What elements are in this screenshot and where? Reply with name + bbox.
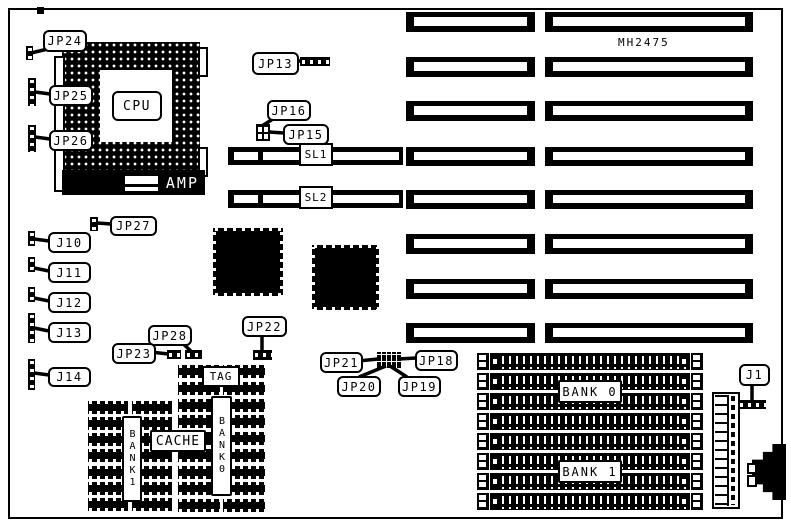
simm-bank0-label: BANK 0 bbox=[558, 380, 622, 403]
jumper-j10 bbox=[28, 231, 35, 246]
label-jp20: JP20 bbox=[337, 376, 381, 397]
expansion-slot bbox=[406, 234, 535, 254]
label-jp16: JP16 bbox=[267, 100, 311, 121]
keyboard-connector-notch bbox=[747, 475, 757, 487]
jumper-jp25 bbox=[28, 78, 36, 106]
label-jp28: JP28 bbox=[148, 325, 192, 346]
label-jp26: JP26 bbox=[49, 130, 93, 151]
board-edge-pad bbox=[37, 7, 44, 14]
jumper-j1 bbox=[738, 400, 766, 409]
expansion-slot bbox=[545, 190, 753, 209]
keyboard-connector-notch bbox=[747, 463, 757, 474]
label-jp27: JP27 bbox=[110, 216, 157, 236]
jumper-block-jp18-jp21 bbox=[377, 352, 401, 368]
simm-socket bbox=[477, 493, 703, 510]
simm-socket bbox=[477, 413, 703, 430]
jumper-jp27 bbox=[90, 217, 98, 231]
expansion-slot bbox=[406, 57, 535, 77]
expansion-slot bbox=[545, 57, 753, 77]
expansion-slot bbox=[545, 147, 753, 166]
label-jp24: JP24 bbox=[43, 30, 87, 52]
expansion-slot bbox=[545, 101, 753, 121]
label-j14: J14 bbox=[48, 367, 91, 387]
expansion-slot bbox=[545, 279, 753, 299]
simm-socket bbox=[477, 433, 703, 450]
sl1-label: SL1 bbox=[299, 143, 333, 166]
jumper-jp26 bbox=[28, 125, 36, 152]
jumper-jp23 bbox=[167, 350, 181, 359]
expansion-slot bbox=[406, 190, 535, 209]
cache-label: CACHE bbox=[150, 430, 206, 452]
jumper-jp15-jp16 bbox=[256, 124, 270, 141]
expansion-slot bbox=[406, 12, 535, 32]
label-jp19: JP19 bbox=[398, 376, 441, 397]
label-jp15: JP15 bbox=[283, 124, 329, 145]
expansion-slot bbox=[545, 12, 753, 32]
expansion-slot bbox=[545, 323, 753, 343]
label-jp23: JP23 bbox=[112, 343, 156, 364]
expansion-slot bbox=[406, 101, 535, 121]
label-jp22: JP22 bbox=[242, 316, 287, 337]
motherboard-diagram: CPU AMP MH2475 SL1 SL2 bbox=[0, 0, 791, 527]
bank0-chip-label: BANK0 bbox=[211, 396, 232, 496]
expansion-slot bbox=[406, 147, 535, 166]
jumper-jp22 bbox=[253, 350, 272, 360]
sl2-label: SL2 bbox=[299, 186, 333, 209]
power-connector bbox=[712, 392, 740, 509]
amp-label: AMP bbox=[166, 174, 199, 192]
label-jp21: JP21 bbox=[320, 352, 363, 373]
label-jp25: JP25 bbox=[49, 85, 93, 106]
jumper-jp24 bbox=[26, 46, 33, 60]
part-number-label: MH2475 bbox=[618, 36, 670, 49]
label-jp13: JP13 bbox=[252, 52, 299, 75]
simm-socket bbox=[477, 353, 703, 370]
expansion-slot bbox=[406, 279, 535, 299]
expansion-slot bbox=[406, 323, 535, 343]
socket-side-bar-right-top bbox=[198, 47, 208, 77]
expansion-slot bbox=[545, 234, 753, 254]
jumper-j13 bbox=[28, 313, 35, 343]
jumper-jp28 bbox=[185, 350, 202, 359]
label-j1: J1 bbox=[739, 364, 770, 386]
jumper-j14 bbox=[28, 359, 35, 390]
label-j12: J12 bbox=[48, 292, 91, 313]
label-jp18: JP18 bbox=[415, 350, 458, 371]
jumper-j11 bbox=[28, 257, 35, 272]
bank1-chip-label: BANK1 bbox=[122, 416, 142, 502]
qfp-chip-left bbox=[213, 228, 283, 296]
jumper-j12 bbox=[28, 287, 35, 302]
qfp-chip-right bbox=[312, 245, 379, 310]
tag-label: TAG bbox=[202, 366, 240, 387]
label-j11: J11 bbox=[48, 262, 91, 283]
amp-connector: AMP bbox=[62, 170, 205, 195]
cpu-label: CPU bbox=[112, 91, 162, 121]
simm-bank1-label: BANK 1 bbox=[558, 460, 622, 483]
label-j13: J13 bbox=[48, 322, 91, 343]
jumper-jp13 bbox=[300, 57, 330, 66]
label-j10: J10 bbox=[48, 232, 91, 253]
